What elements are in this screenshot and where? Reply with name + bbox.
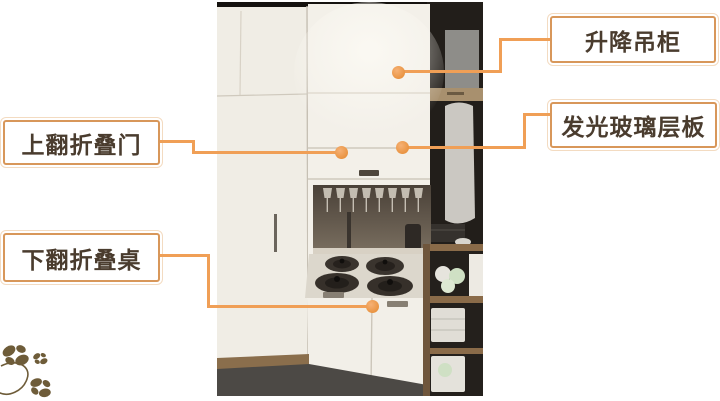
glass-stand: [347, 212, 351, 250]
butterfly-icon: [26, 374, 56, 401]
rail-slot: [447, 92, 464, 95]
callout-line-fold-up-door: [192, 151, 342, 154]
drawer-handle-right: [387, 301, 408, 307]
cabinet-photo: [217, 2, 483, 396]
callout-line-fold-down-table: [160, 254, 210, 257]
countertop: [313, 248, 431, 255]
callout-line-fold-down-table: [207, 305, 373, 308]
callout-line-glass-shelf: [403, 146, 526, 149]
label-text: 升降吊柜: [585, 23, 681, 57]
kettle: [405, 224, 421, 250]
label-lifting-wall-cabinet: 升降吊柜: [550, 16, 716, 63]
door-handle-groove: [274, 214, 277, 252]
label-text: 发光玻璃层板: [562, 108, 706, 142]
fold-door-handle: [359, 170, 379, 176]
callout-line-glass-shelf: [523, 113, 550, 116]
drawer-handle-left: [323, 292, 344, 298]
towel-stack: [431, 308, 465, 342]
callout-dot-lifting-cabinet: [392, 66, 405, 79]
butterfly-icon: [32, 352, 48, 365]
butterfly-flower-ornament-icon: [0, 336, 72, 401]
callout-dot-fold-up-door: [335, 146, 348, 159]
label-fold-up-door: 上翻折叠门: [3, 120, 160, 165]
swirl-line: [0, 363, 28, 394]
rolled-towel: [438, 363, 452, 377]
callout-line-lifting-cabinet: [499, 38, 550, 41]
label-fold-down-table: 下翻折叠桌: [3, 233, 160, 282]
label-luminous-glass-shelf: 发光玻璃层板: [550, 102, 717, 148]
callout-dot-fold-down-table: [366, 300, 379, 313]
callout-line-lifting-cabinet: [499, 38, 502, 73]
wardrobe-panel: [445, 30, 479, 90]
callout-line-fold-up-door: [160, 140, 195, 143]
callout-line-glass-shelf: [523, 113, 526, 149]
side-shelf-unit: [423, 244, 483, 396]
annotated-diagram: 升降吊柜 发光玻璃层板 上翻折叠门 下翻折叠桌: [0, 0, 720, 401]
callout-dot-glass-shelf: [396, 141, 409, 154]
label-text: 上翻折叠门: [22, 126, 142, 160]
rolled-towel: [441, 279, 455, 293]
callout-line-fold-down-table: [207, 254, 210, 308]
callout-line-lifting-cabinet: [398, 70, 502, 73]
label-text: 下翻折叠桌: [22, 241, 142, 275]
hanging-garment: [445, 103, 475, 224]
